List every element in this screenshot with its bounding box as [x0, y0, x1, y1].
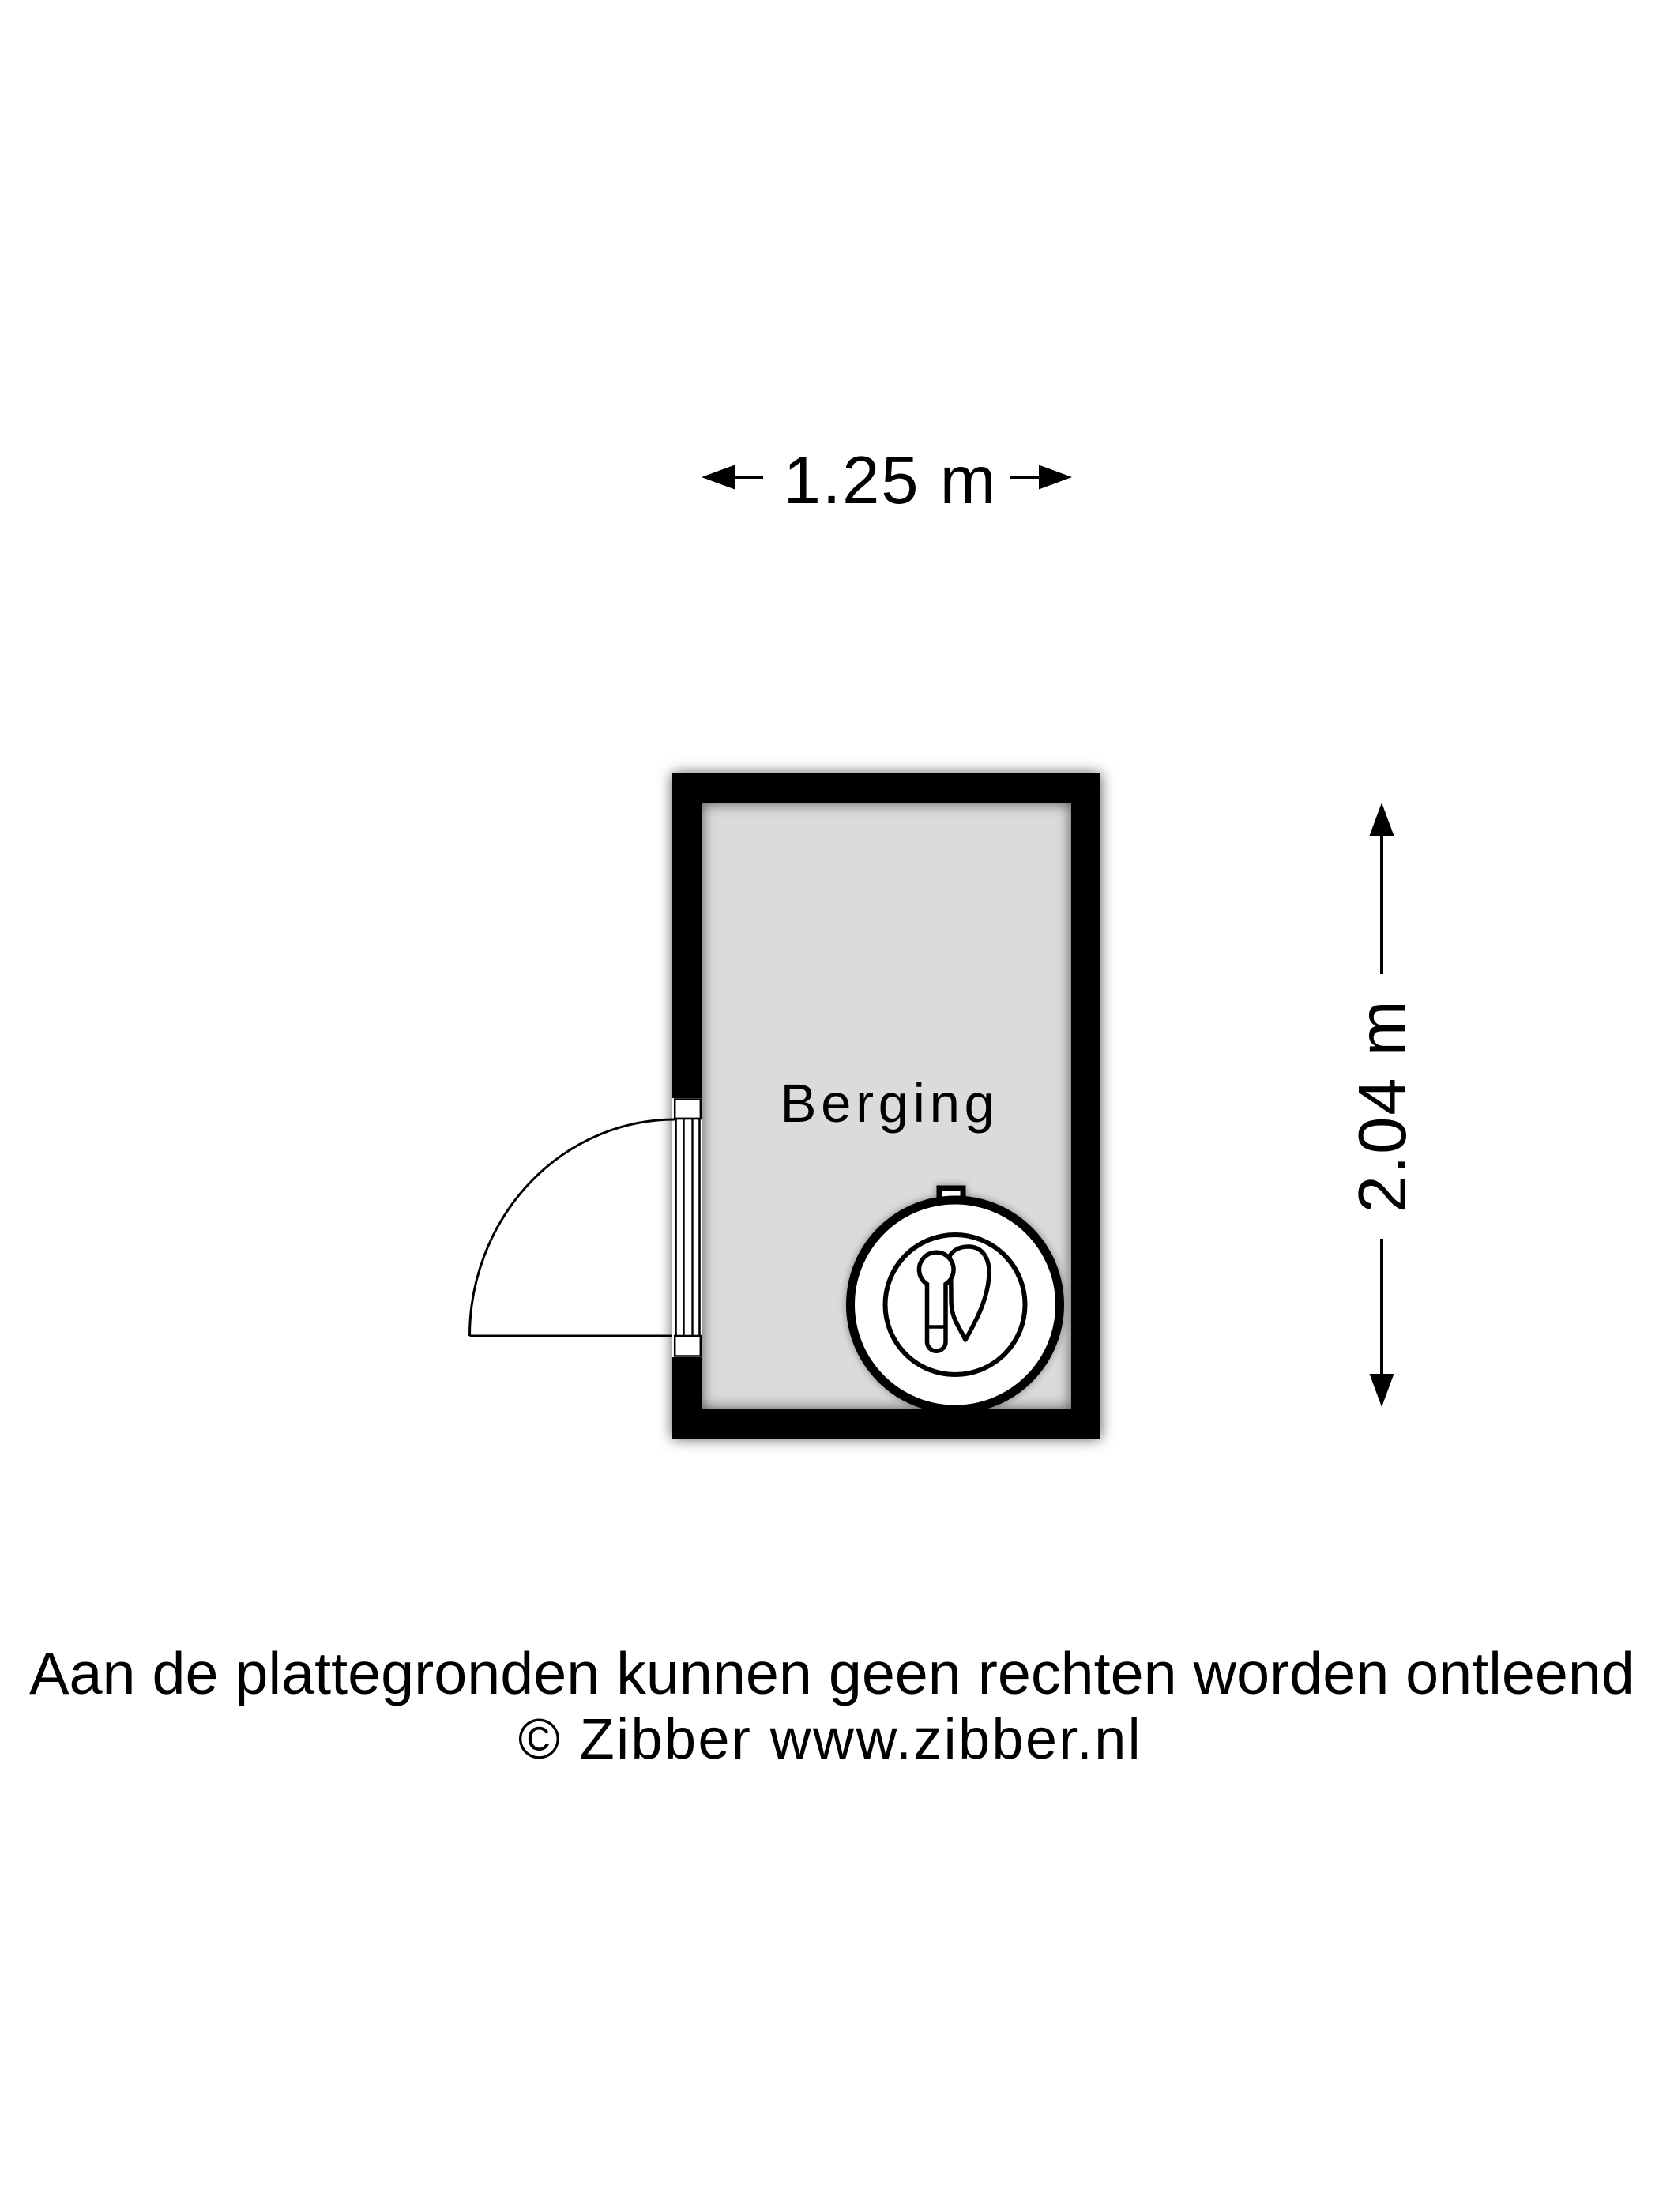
svg-text:1.25 m: 1.25 m: [784, 443, 998, 518]
svg-text:Aan de plattegronden kunnen ge: Aan de plattegronden kunnen geen rechten…: [29, 1640, 1635, 1706]
svg-text:© Zibber www.zibber.nl: © Zibber www.zibber.nl: [518, 1708, 1142, 1771]
svg-text:2.04 m: 2.04 m: [1345, 999, 1420, 1213]
svg-text:Berging: Berging: [780, 1073, 999, 1134]
